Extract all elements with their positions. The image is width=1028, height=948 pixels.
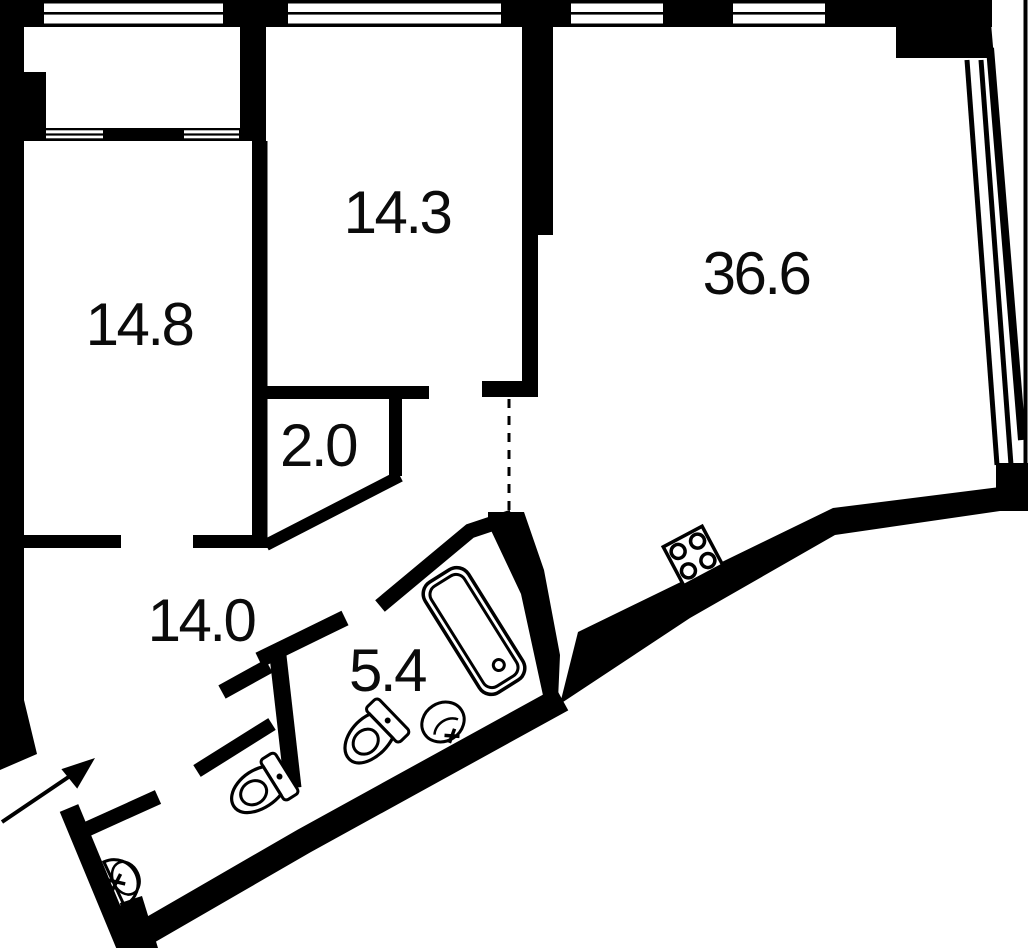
svg-text:14.3: 14.3 <box>344 179 451 246</box>
svg-text:14.8: 14.8 <box>86 291 193 358</box>
svg-text:2.0: 2.0 <box>280 412 357 479</box>
svg-text:5.4: 5.4 <box>349 637 426 704</box>
svg-text:36.6: 36.6 <box>703 240 810 307</box>
svg-text:14.0: 14.0 <box>148 587 256 654</box>
